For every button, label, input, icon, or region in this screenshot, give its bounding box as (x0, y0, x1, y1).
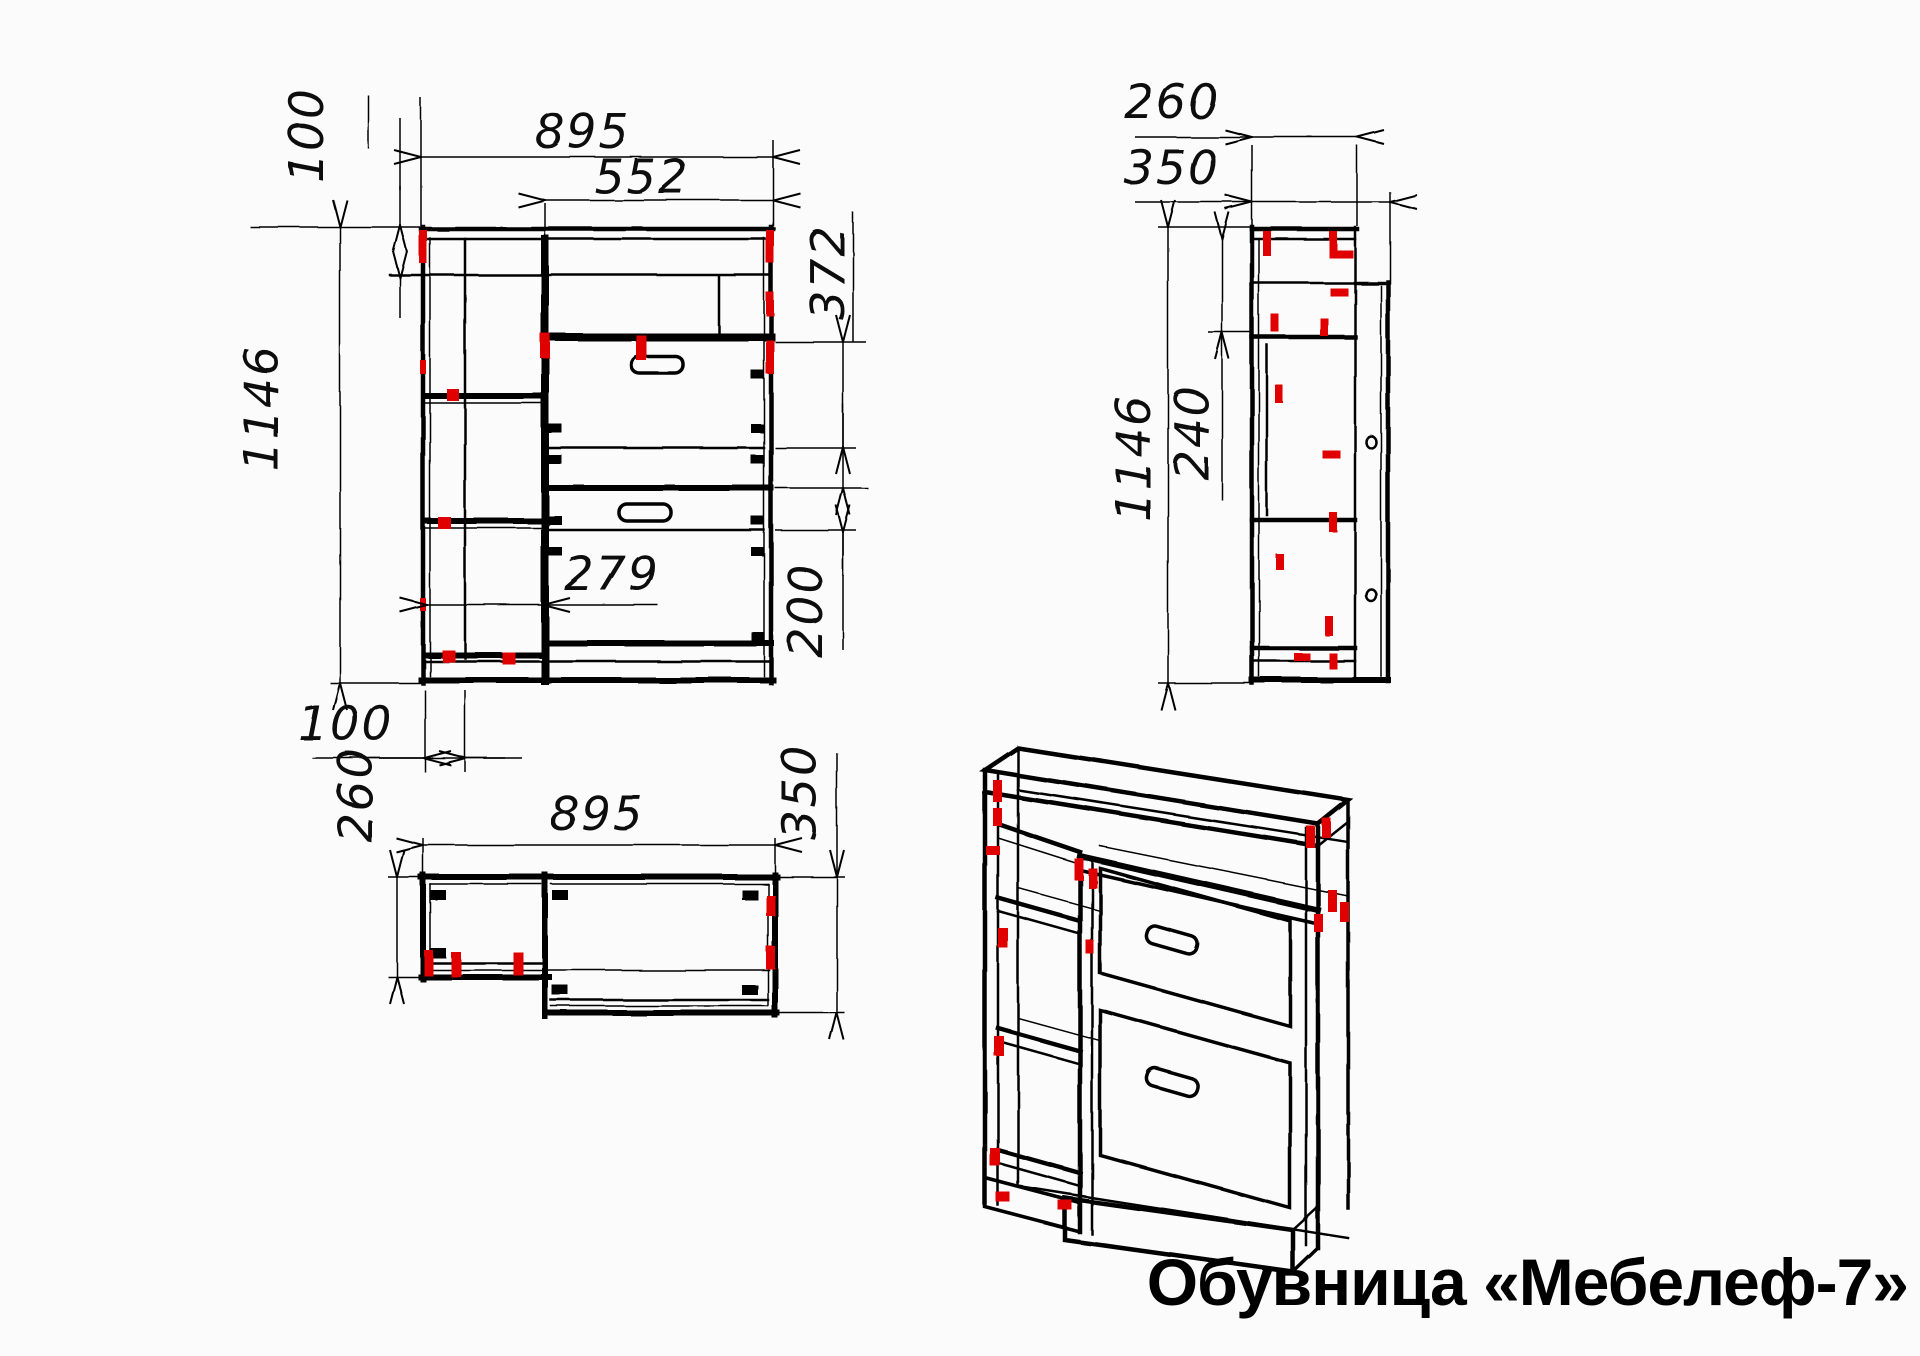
dim-front-niche-width: 552 (594, 150, 690, 205)
side-fasteners (1263, 231, 1353, 669)
dim-side-height: 1146 (1107, 394, 1162, 522)
dim-plan-width: 895 (549, 787, 645, 842)
dim-plan-side-offset: 100 (298, 697, 394, 752)
dim-front-shelf-width: 279 (564, 547, 660, 602)
dim-front-top-height: 100 (280, 87, 335, 183)
dim-front-niche-height: 372 (801, 224, 856, 320)
plan-dimensions: 100 260 895 350 (298, 697, 845, 1013)
dim-plan-right-depth: 350 (773, 744, 828, 840)
iso-drawer2-handle (1145, 1066, 1200, 1098)
dim-front-height: 1146 (235, 344, 290, 472)
front-view: 895 552 100 1146 372 200 (235, 87, 868, 772)
iso-drawer1-handle (1145, 924, 1200, 956)
side-view: 260 350 1146 240 (1107, 75, 1390, 683)
iso-fasteners (986, 780, 1349, 1210)
plan-fasteners (424, 895, 775, 977)
iso-drawer1 (1100, 868, 1290, 1026)
technical-drawing: 895 552 100 1146 372 200 (0, 0, 1920, 1356)
door-hole-top (1366, 436, 1376, 448)
door-hole-bottom (1366, 589, 1376, 601)
side-dimensions: 260 350 1146 240 (1107, 75, 1390, 683)
blueprint-page: 895 552 100 1146 372 200 (0, 0, 1920, 1356)
dim-side-depth: 350 (1124, 141, 1220, 196)
dim-front-bottom-gap: 200 (779, 562, 834, 658)
dim-side-top-depth: 260 (1124, 75, 1220, 130)
isometric-view (985, 748, 1349, 1272)
drawing-title: Обувница «Мебелеф-7» (1147, 1245, 1908, 1319)
dim-side-upper-section: 240 (1165, 384, 1220, 480)
drawer2-handle (619, 504, 671, 521)
plan-view: 100 260 895 350 (298, 697, 845, 1016)
dim-plan-left-depth: 260 (329, 747, 384, 843)
iso-drawer2 (1100, 1010, 1290, 1208)
